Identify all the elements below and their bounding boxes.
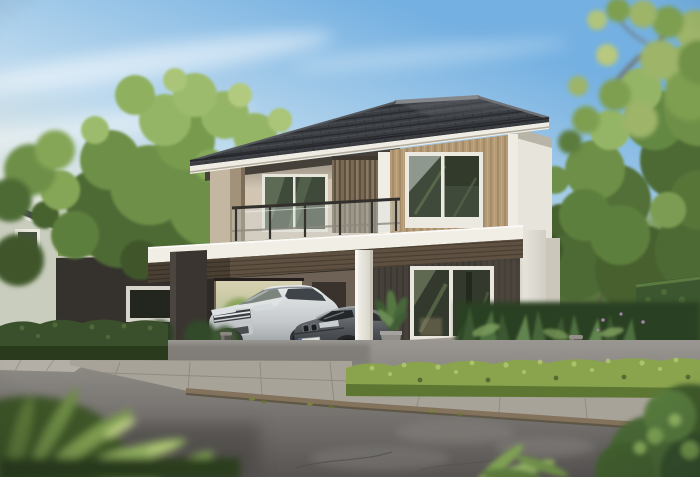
vignette-overlay (0, 0, 700, 477)
scene-canvas (0, 0, 700, 477)
house-exterior-render (0, 0, 700, 477)
